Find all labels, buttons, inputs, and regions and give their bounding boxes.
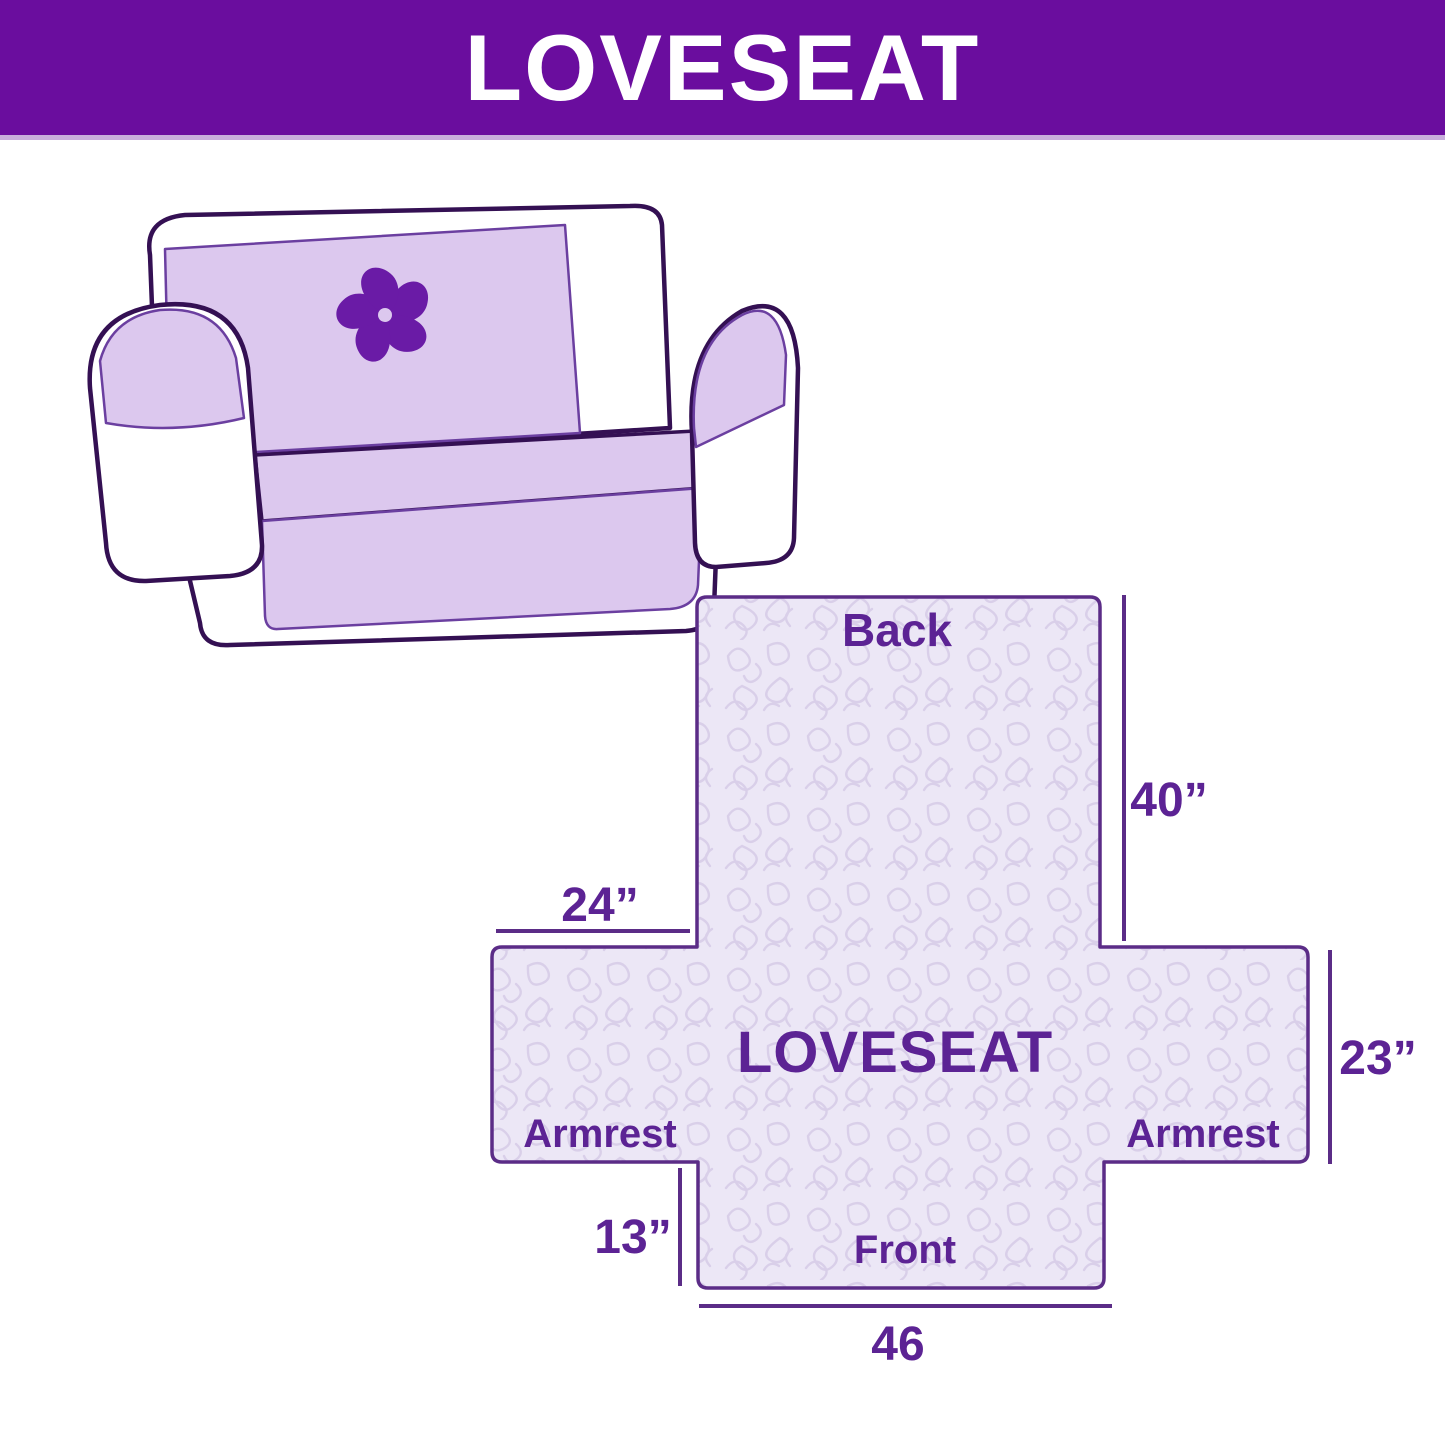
- dim-back-height: 40”: [1130, 774, 1207, 827]
- armrest-left-label: Armrest: [523, 1112, 676, 1156]
- cover-outline-shape: [492, 597, 1308, 1288]
- dim-front-width: 46: [871, 1318, 924, 1371]
- product-infographic: LOVESEAT: [0, 0, 1445, 1445]
- dim-back-top-width: 24”: [561, 879, 638, 932]
- page-title: LOVESEAT: [465, 21, 981, 115]
- cover-diagram-svg: Back LOVESEAT Armrest Armrest Front 40” …: [440, 560, 1445, 1400]
- header-banner: LOVESEAT: [0, 0, 1445, 140]
- back-label: Back: [842, 604, 952, 656]
- armrest-right-label: Armrest: [1126, 1112, 1279, 1156]
- cover-dimensions-diagram: Back LOVESEAT Armrest Armrest Front 40” …: [440, 560, 1445, 1400]
- front-label: Front: [854, 1228, 956, 1272]
- diagram-product-label: LOVESEAT: [737, 1020, 1053, 1085]
- dim-front-drop: 13”: [594, 1211, 671, 1264]
- dim-armrest-height: 23”: [1339, 1032, 1416, 1085]
